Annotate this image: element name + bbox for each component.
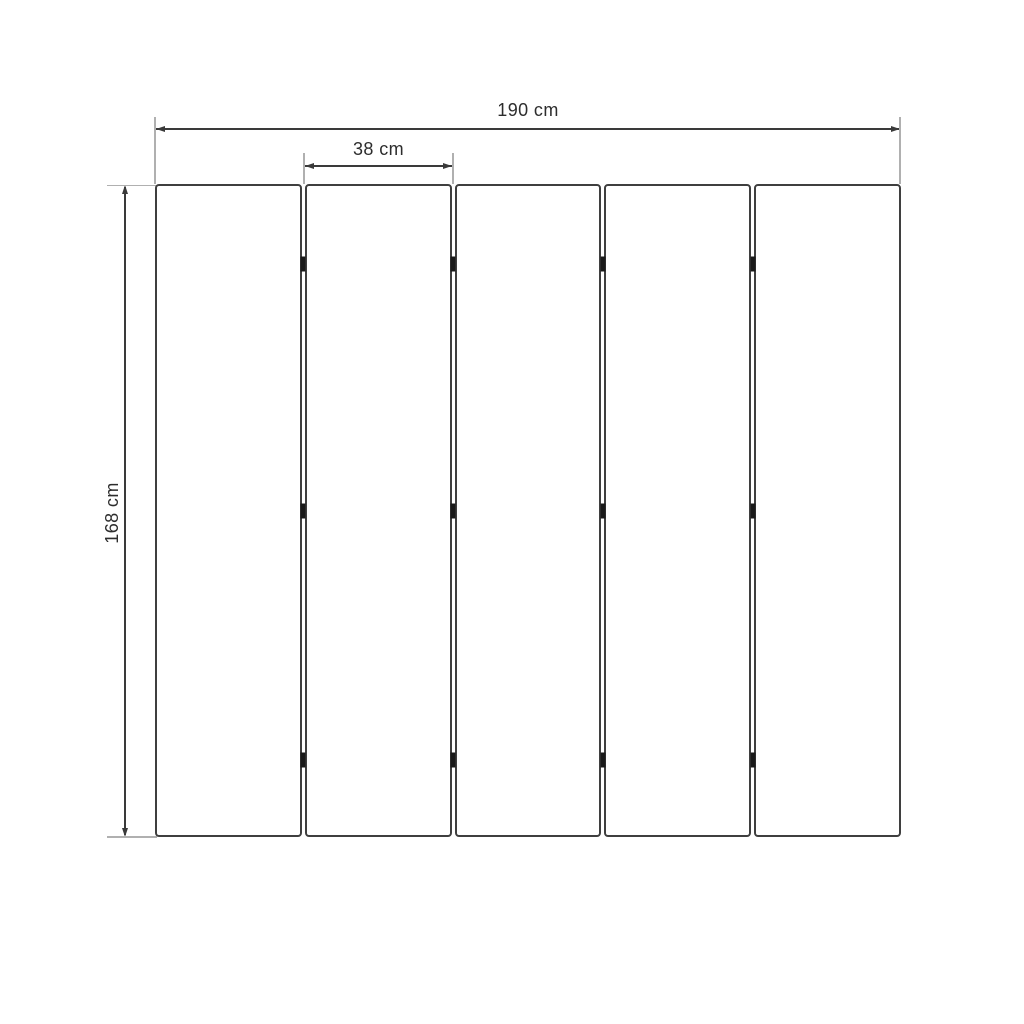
extension-line-left — [303, 153, 305, 184]
arrowhead-up-icon — [122, 185, 128, 194]
hinge-joints — [155, 184, 901, 837]
hinge-mark — [301, 752, 306, 767]
hinge-mark — [750, 256, 755, 271]
arrowhead-left-icon — [156, 126, 165, 132]
panel-width-label: 38 cm — [304, 138, 453, 160]
dimension-diagram: 190 cm 38 cm 168 cm — [0, 0, 1024, 1024]
total-width-label: 190 cm — [155, 99, 901, 121]
hinge-mark — [301, 503, 306, 518]
hinge-mark — [750, 503, 755, 518]
hinge-mark — [451, 503, 456, 518]
hinge-mark — [750, 752, 755, 767]
hinge-mark — [600, 503, 605, 518]
hinge-mark — [451, 752, 456, 767]
extension-line-right — [452, 153, 454, 184]
arrowhead-left-icon — [305, 163, 314, 169]
panel-group — [155, 184, 901, 837]
extension-line-top — [107, 185, 157, 187]
hinge-mark — [451, 256, 456, 271]
hinge-mark — [301, 256, 306, 271]
extension-line-bottom — [107, 836, 157, 838]
arrowhead-right-icon — [443, 163, 452, 169]
height-dimension-line — [124, 187, 126, 835]
extension-line-right — [899, 117, 901, 184]
hinge-mark — [600, 256, 605, 271]
hinge-mark — [600, 752, 605, 767]
height-label: 168 cm — [101, 482, 123, 543]
panel-width-dimension-line — [305, 165, 452, 167]
extension-line-left — [154, 117, 156, 184]
total-width-dimension-line — [156, 128, 900, 130]
